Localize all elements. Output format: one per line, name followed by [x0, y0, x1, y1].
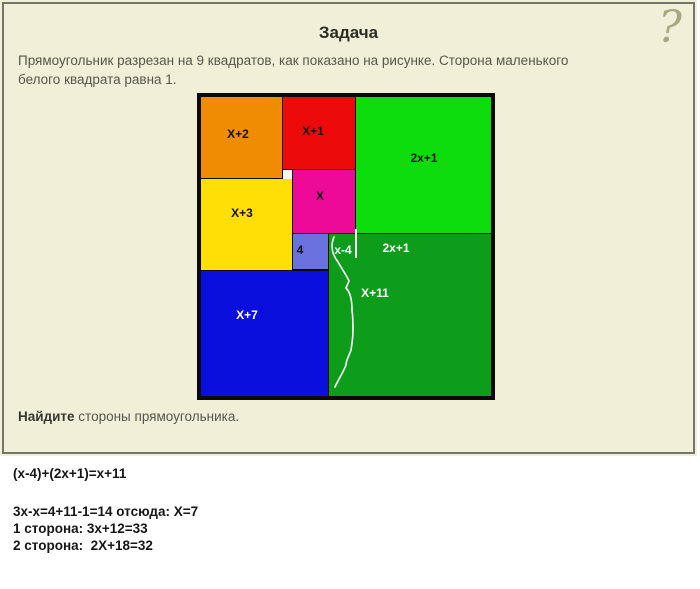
solution-equation: (x-4)+(2x+1)=x+11	[13, 465, 126, 482]
find-instruction-bold: Найдите	[18, 409, 75, 424]
brace-curve	[332, 237, 353, 387]
page-title: Задача	[0, 23, 697, 43]
solution-side-2: 2 сторона: 2X+18=32	[13, 537, 153, 554]
solution-side-1: 1 сторона: 3x+12=33	[13, 520, 148, 537]
squares-diagram: X+2 X+1 2x+1 X X+3 4 x-4 2x+1 X+11 X+7	[197, 93, 495, 400]
find-instruction-rest: стороны прямоугольника.	[75, 409, 240, 424]
solution-derivation: 3x-x=4+11-1=14 отсюда: X=7	[13, 503, 198, 520]
problem-statement-line1: Прямоугольник разрезан на 9 квадратов, к…	[18, 53, 568, 68]
problem-statement-line2: белого квадрата равна 1.	[18, 72, 177, 87]
find-instruction: Найдите стороны прямоугольника.	[18, 409, 239, 424]
hand-drawn-annotations	[197, 93, 495, 400]
problem-statement: Прямоугольник разрезан на 9 квадратов, к…	[18, 51, 678, 89]
problem-panel: ? Задача Прямоугольник разрезан на 9 ква…	[0, 0, 697, 456]
